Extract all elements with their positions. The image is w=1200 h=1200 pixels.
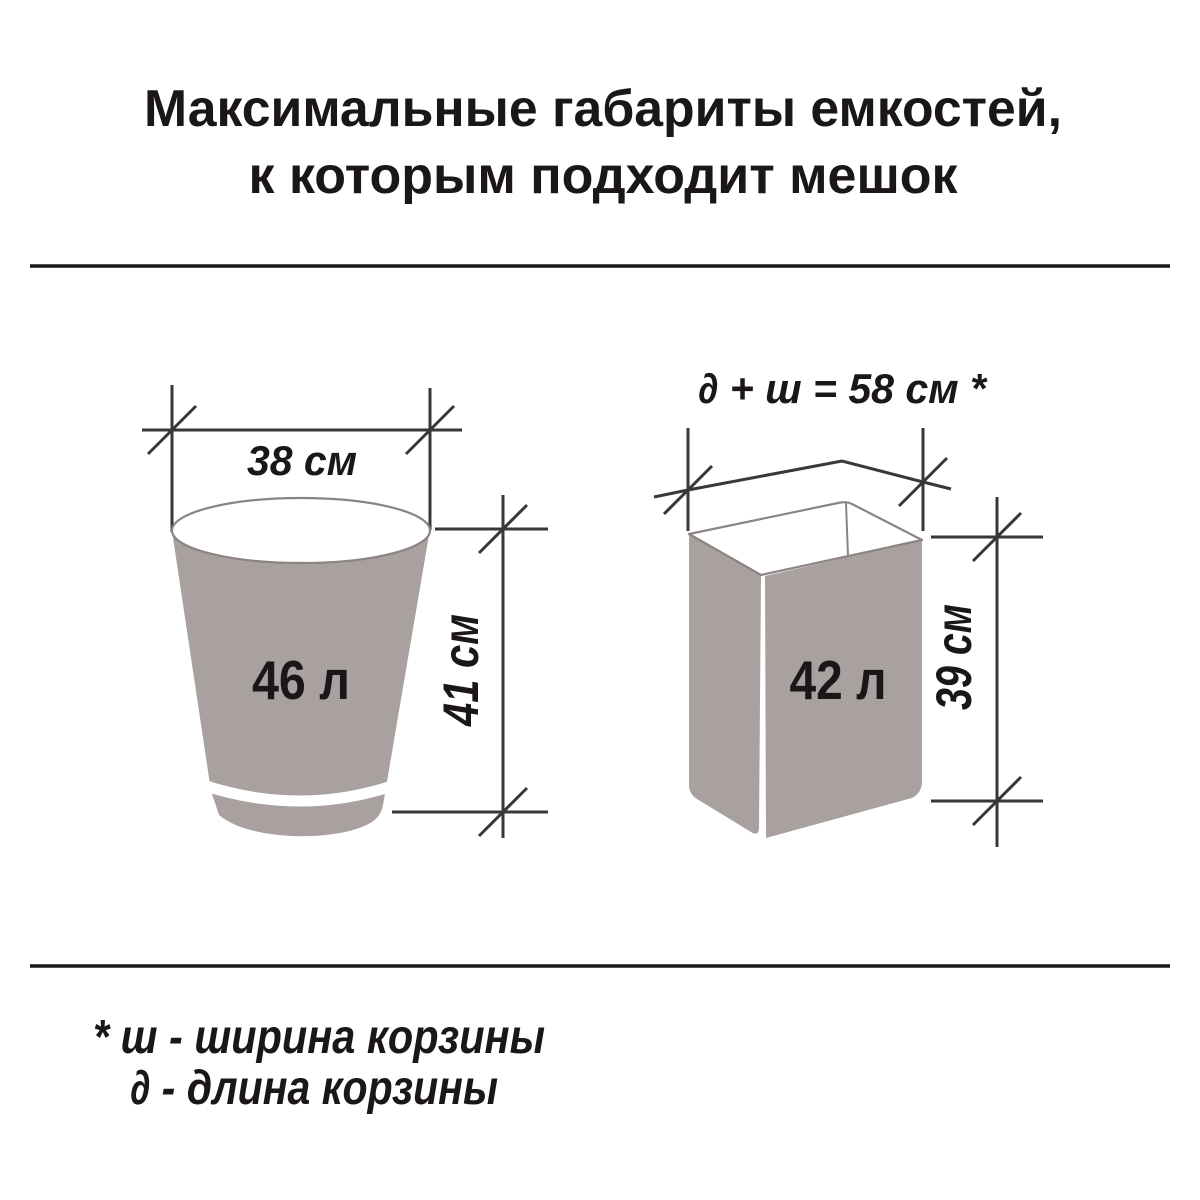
svg-text:∂ - длина корзины: ∂ - длина корзины	[130, 1062, 498, 1115]
svg-text:* ш - ширина корзины: * ш - ширина корзины	[93, 1011, 545, 1064]
svg-text:38 см: 38 см	[247, 437, 357, 484]
svg-text:∂ + ш = 58 см *: ∂ + ш = 58 см *	[698, 365, 988, 412]
svg-text:Максимальные габариты емкостей: Максимальные габариты емкостей,	[144, 80, 1062, 138]
svg-text:42 л: 42 л	[790, 649, 887, 711]
svg-text:39 см: 39 см	[926, 604, 982, 710]
svg-text:46 л: 46 л	[252, 649, 350, 711]
svg-text:к которым подходит мешок: к которым подходит мешок	[249, 147, 959, 205]
svg-text:41 см: 41 см	[433, 614, 489, 727]
